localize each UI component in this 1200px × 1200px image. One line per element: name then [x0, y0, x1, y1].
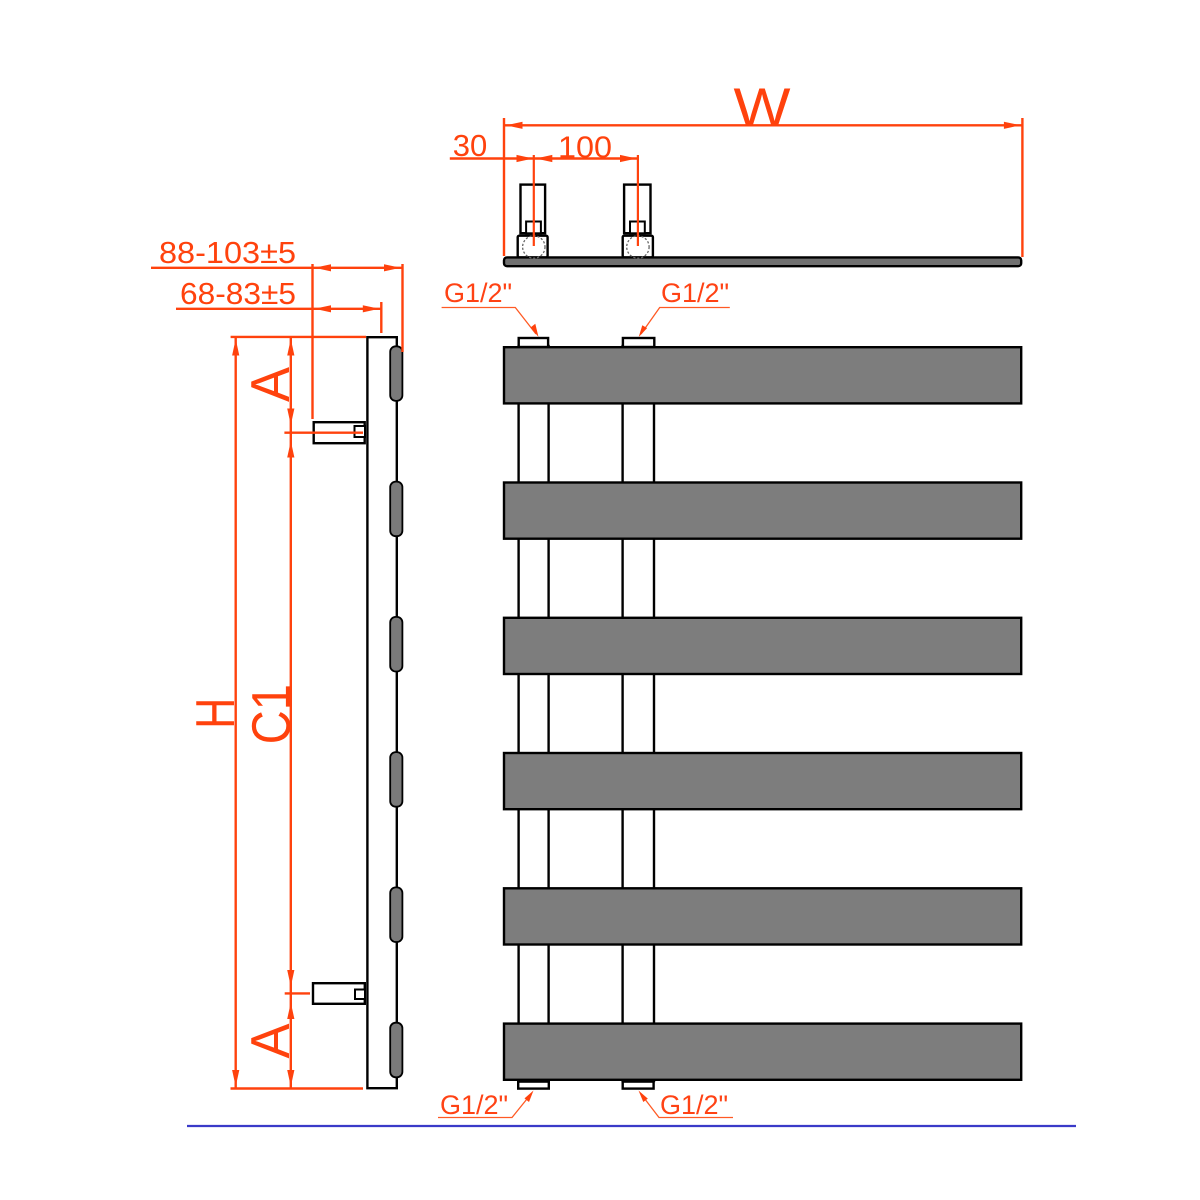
- svg-text:88-103±5: 88-103±5: [159, 235, 296, 270]
- svg-text:30: 30: [453, 128, 487, 163]
- svg-text:C1: C1: [240, 684, 302, 744]
- svg-text:A: A: [239, 1023, 301, 1058]
- svg-text:H: H: [184, 698, 246, 729]
- svg-text:G1/2": G1/2": [660, 1090, 728, 1120]
- svg-text:W: W: [734, 78, 791, 138]
- svg-text:A: A: [239, 367, 301, 402]
- svg-text:68-83±5: 68-83±5: [180, 276, 296, 311]
- svg-text:100: 100: [558, 130, 612, 165]
- svg-text:G1/2": G1/2": [444, 278, 512, 308]
- svg-text:G1/2": G1/2": [661, 278, 729, 308]
- svg-text:G1/2": G1/2": [440, 1090, 508, 1120]
